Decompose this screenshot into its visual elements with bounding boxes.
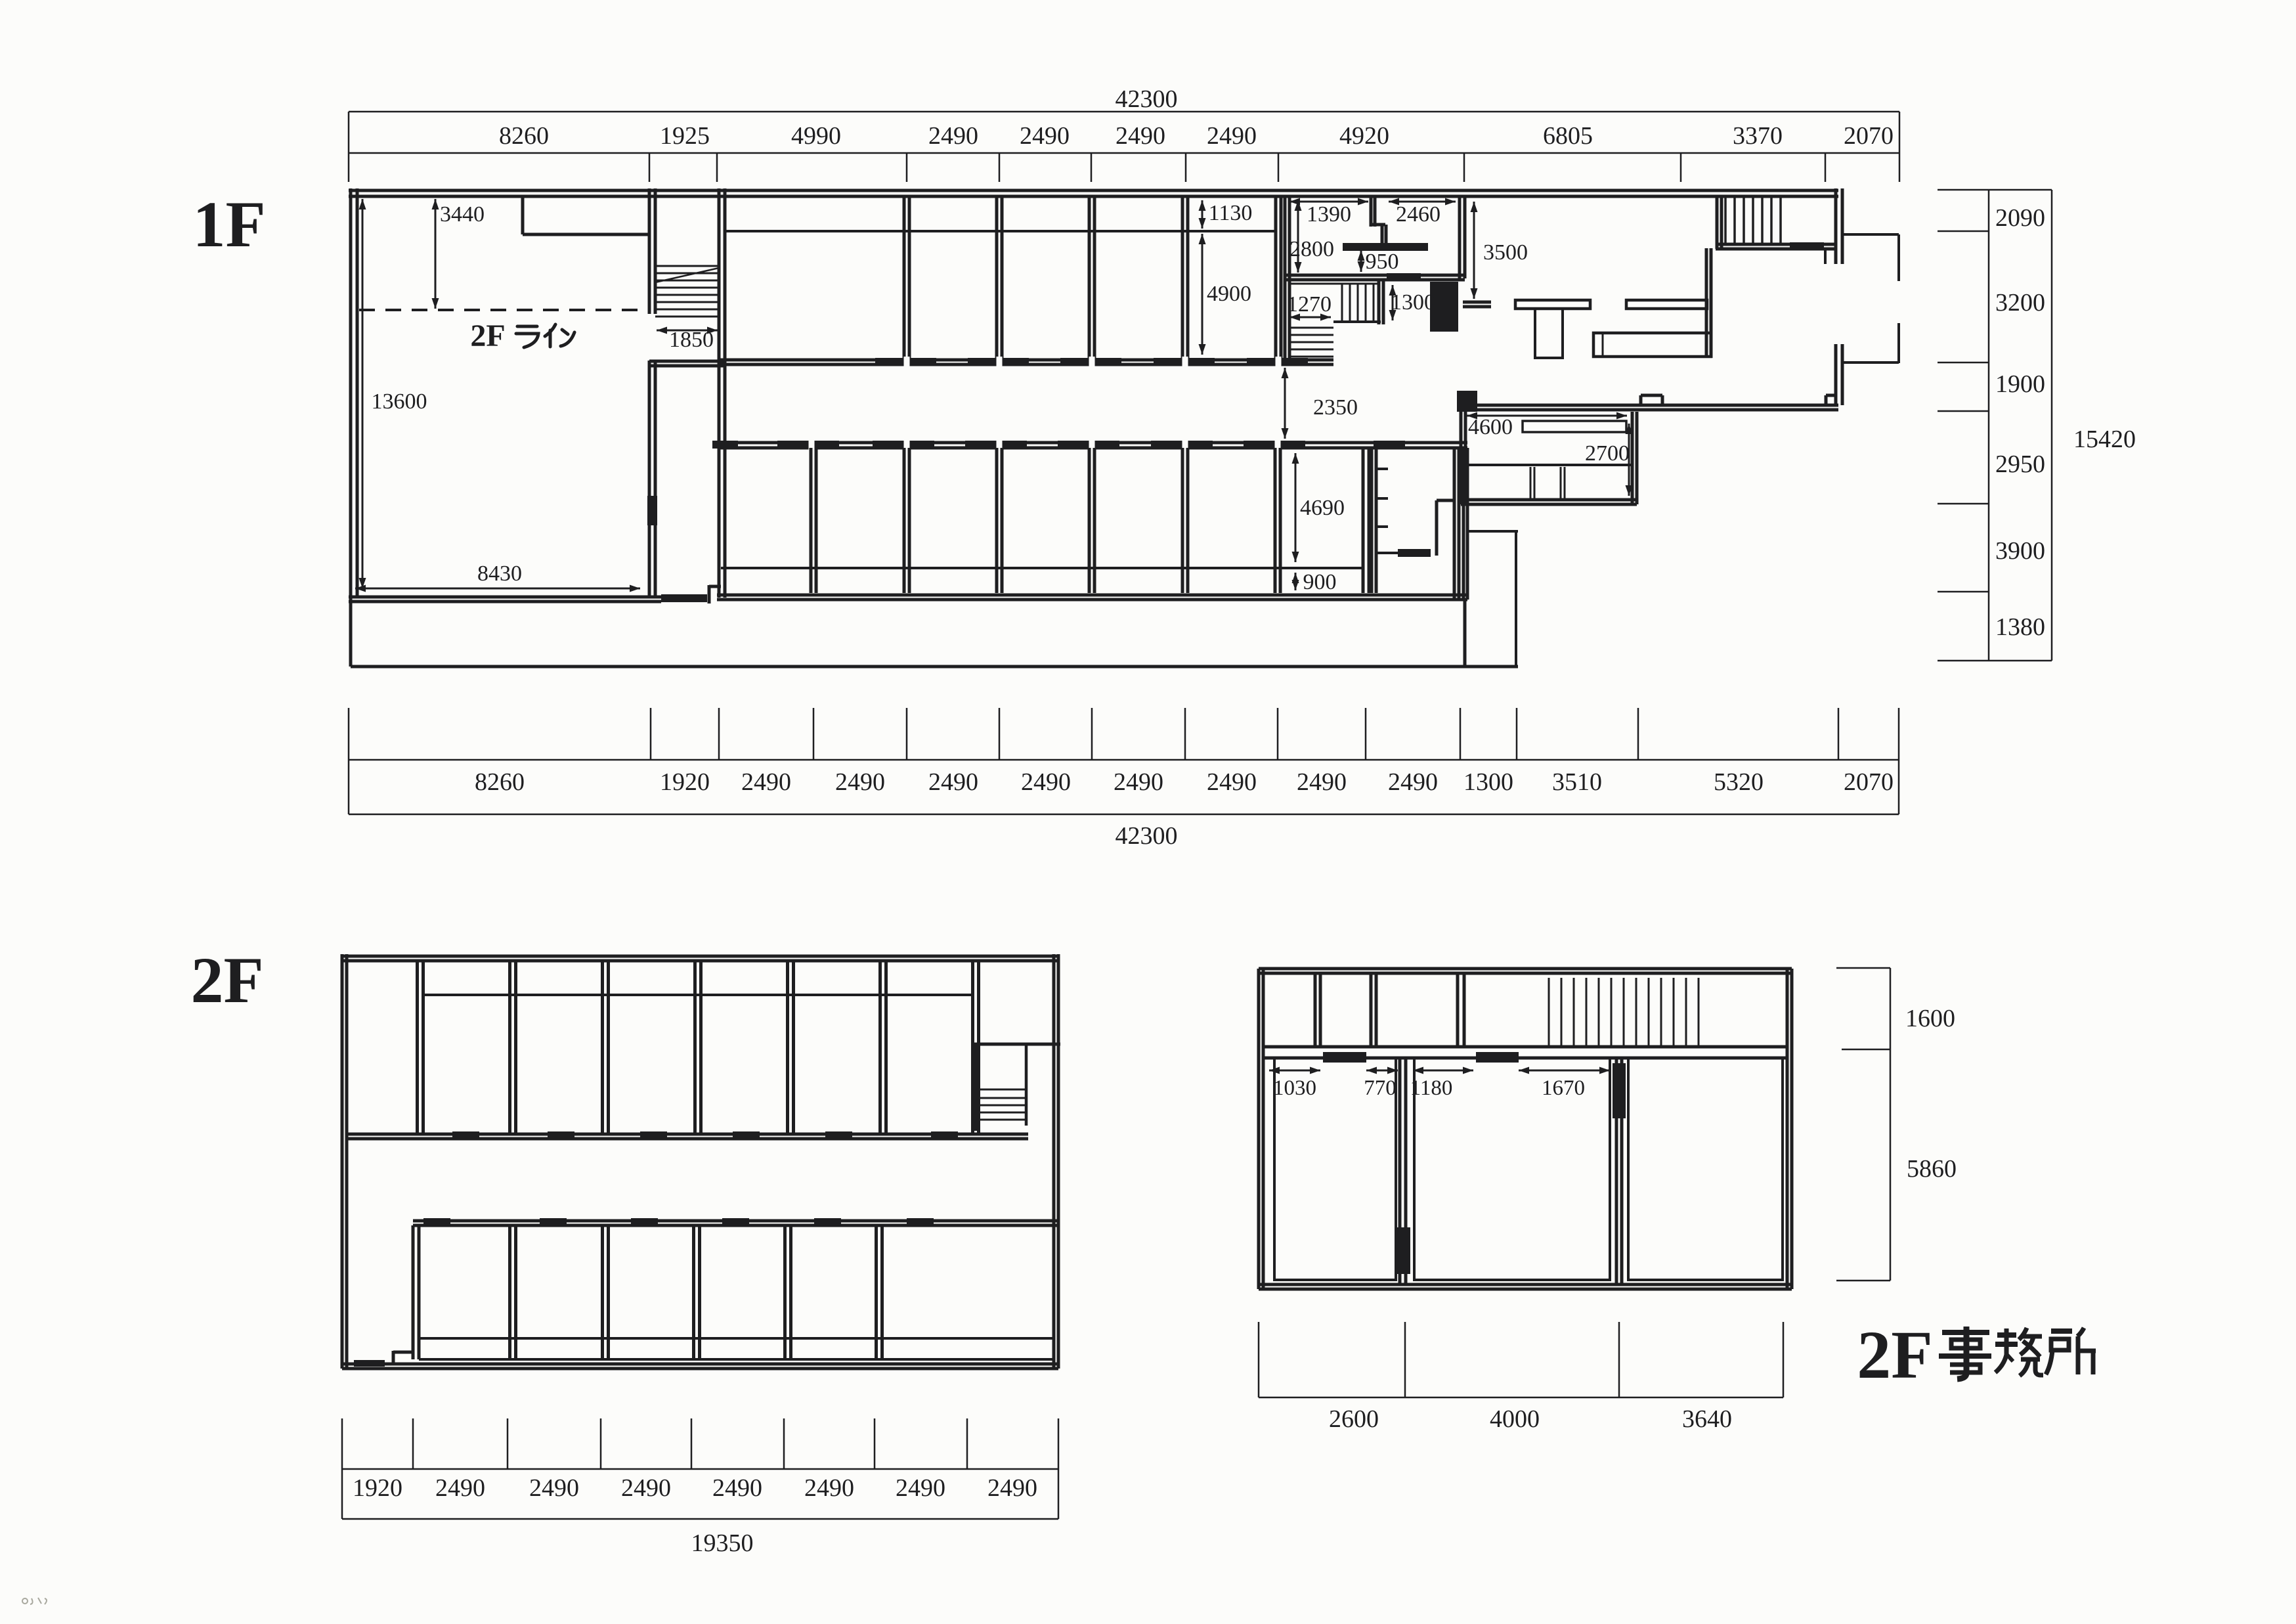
svg-text:2460: 2460 bbox=[1396, 202, 1440, 227]
svg-text:8430: 8430 bbox=[477, 561, 522, 586]
svg-text:2490: 2490 bbox=[835, 768, 885, 796]
svg-text:3510: 3510 bbox=[1552, 768, 1602, 796]
svg-text:2490: 2490 bbox=[1207, 122, 1257, 150]
svg-text:1F: 1F bbox=[192, 188, 265, 261]
svg-text:2490: 2490 bbox=[621, 1474, 671, 1502]
svg-text:2490: 2490 bbox=[1116, 122, 1165, 150]
svg-text:5860: 5860 bbox=[1907, 1155, 1957, 1183]
svg-text:3500: 3500 bbox=[1483, 240, 1528, 265]
svg-text:4900: 4900 bbox=[1207, 282, 1251, 306]
svg-text:19350: 19350 bbox=[691, 1529, 754, 1557]
svg-text:2490: 2490 bbox=[1297, 768, 1347, 796]
svg-text:2490: 2490 bbox=[529, 1474, 579, 1502]
svg-text:2070: 2070 bbox=[1844, 768, 1894, 796]
svg-text:2950: 2950 bbox=[1995, 450, 2045, 478]
svg-text:4690: 4690 bbox=[1300, 496, 1345, 520]
svg-text:4600: 4600 bbox=[1468, 415, 1513, 439]
svg-text:2490: 2490 bbox=[987, 1474, 1037, 1502]
svg-text:1270: 1270 bbox=[1287, 292, 1332, 317]
svg-text:2090: 2090 bbox=[1995, 204, 2045, 232]
svg-text:8260: 8260 bbox=[499, 122, 549, 150]
svg-text:2490: 2490 bbox=[1020, 122, 1070, 150]
svg-text:900: 900 bbox=[1303, 570, 1337, 594]
svg-text:2800: 2800 bbox=[1289, 237, 1334, 261]
svg-text:2490: 2490 bbox=[928, 122, 978, 150]
svg-text:1670: 1670 bbox=[1542, 1076, 1585, 1100]
svg-text:3370: 3370 bbox=[1733, 122, 1783, 150]
svg-text:1030: 1030 bbox=[1273, 1076, 1316, 1100]
svg-text:2490: 2490 bbox=[896, 1474, 945, 1502]
svg-text:2070: 2070 bbox=[1844, 122, 1894, 150]
svg-text:1390: 1390 bbox=[1307, 202, 1351, 227]
svg-text:15420: 15420 bbox=[2073, 426, 2136, 453]
svg-text:2490: 2490 bbox=[712, 1474, 762, 1502]
svg-text:2350: 2350 bbox=[1313, 395, 1358, 420]
svg-text:3640: 3640 bbox=[1682, 1405, 1732, 1433]
svg-text:4990: 4990 bbox=[791, 122, 841, 150]
svg-text:13600: 13600 bbox=[372, 389, 427, 414]
svg-text:1920: 1920 bbox=[353, 1474, 402, 1502]
svg-text:2490: 2490 bbox=[1207, 768, 1257, 796]
svg-text:1850: 1850 bbox=[669, 328, 714, 352]
svg-text:1380: 1380 bbox=[1995, 613, 2045, 641]
svg-text:42300: 42300 bbox=[1116, 85, 1178, 113]
svg-text:1180: 1180 bbox=[1410, 1076, 1453, 1100]
svg-text:2490: 2490 bbox=[1021, 768, 1071, 796]
svg-text:2F: 2F bbox=[470, 318, 505, 353]
svg-text:2600: 2600 bbox=[1329, 1405, 1379, 1433]
svg-text:6805: 6805 bbox=[1543, 122, 1593, 150]
svg-text:950: 950 bbox=[1366, 250, 1399, 274]
svg-text:2490: 2490 bbox=[928, 768, 978, 796]
svg-text:2F: 2F bbox=[1857, 1317, 1933, 1393]
svg-text:1920: 1920 bbox=[660, 768, 710, 796]
svg-text:1925: 1925 bbox=[660, 122, 710, 150]
svg-text:2F: 2F bbox=[190, 944, 263, 1017]
svg-text:2490: 2490 bbox=[1114, 768, 1163, 796]
svg-text:2490: 2490 bbox=[435, 1474, 485, 1502]
svg-text:770: 770 bbox=[1364, 1076, 1397, 1100]
svg-text:4000: 4000 bbox=[1490, 1405, 1540, 1433]
svg-text:1600: 1600 bbox=[1905, 1005, 1955, 1032]
svg-text:2490: 2490 bbox=[741, 768, 791, 796]
svg-text:2490: 2490 bbox=[1388, 768, 1438, 796]
svg-text:5320: 5320 bbox=[1714, 768, 1764, 796]
svg-text:1300: 1300 bbox=[1463, 768, 1513, 796]
svg-text:3900: 3900 bbox=[1995, 537, 2045, 565]
svg-text:1130: 1130 bbox=[1209, 201, 1253, 225]
svg-text:2700: 2700 bbox=[1585, 441, 1630, 466]
svg-text:3440: 3440 bbox=[440, 202, 485, 227]
svg-text:1900: 1900 bbox=[1995, 370, 2045, 398]
svg-text:2490: 2490 bbox=[804, 1474, 854, 1502]
svg-text:1300: 1300 bbox=[1391, 290, 1435, 315]
svg-text:42300: 42300 bbox=[1116, 822, 1178, 850]
svg-text:4920: 4920 bbox=[1339, 122, 1389, 150]
svg-text:8260: 8260 bbox=[475, 768, 525, 796]
svg-text:3200: 3200 bbox=[1995, 289, 2045, 317]
